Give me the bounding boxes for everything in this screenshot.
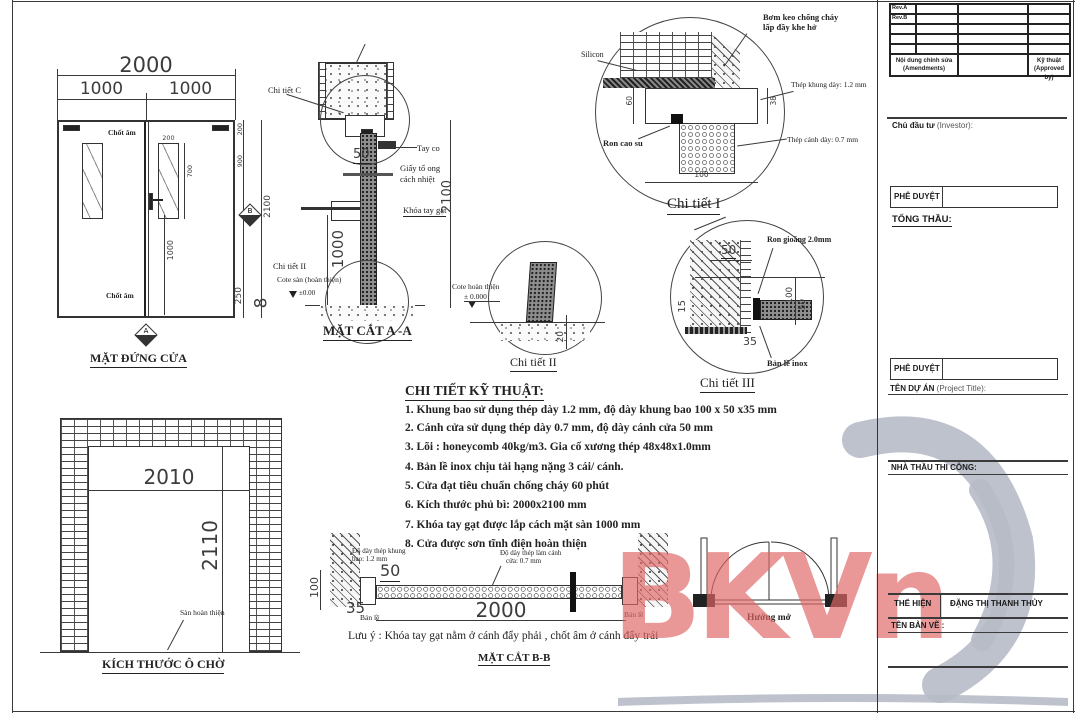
cell — [1028, 14, 1070, 24]
dim-opening-height: 2110 — [198, 520, 222, 571]
label-core-1: Giấy tổ ong — [400, 163, 440, 173]
dim-top-200: 200 — [236, 123, 244, 135]
floor-fill — [500, 323, 590, 341]
cell — [1028, 44, 1070, 54]
label-hinge-inox: Bản lề inox — [767, 358, 808, 368]
dim-100: 100 — [645, 170, 758, 179]
label-core-2: cách nhiệt — [400, 174, 435, 184]
dim-20: 20 — [556, 331, 566, 342]
spec-item: 2. Cánh cửa sử dụng thép dày 0.7 mm, độ … — [405, 422, 713, 434]
row-divider — [940, 593, 941, 617]
dim-line — [695, 277, 825, 278]
level-marker-icon — [289, 291, 297, 298]
dim-line — [88, 490, 250, 491]
label-tay-co: Tay co — [417, 143, 440, 153]
label-gasket: Ron gioăng 2.0mm — [767, 235, 831, 244]
dim-total-width: 2000 — [57, 53, 235, 77]
amendments-cell: Nội dung chỉnh sửa (Amendments) — [890, 54, 958, 76]
ext-line — [146, 93, 147, 120]
the-hien-label: THỂ HIỆN — [894, 599, 931, 608]
tong-thau-label: TỔNG THẦU: — [892, 214, 952, 227]
door-handle-icon — [149, 193, 153, 210]
cell — [958, 14, 1028, 24]
meeting-stile-line — [148, 122, 149, 316]
project-label-bold: TÊN DỰ ÁN — [890, 384, 934, 393]
rule — [888, 666, 1068, 668]
leader-line — [492, 566, 502, 587]
rule — [888, 394, 1068, 395]
dim-line — [795, 277, 796, 325]
section-marker-a-icon: A — [134, 323, 158, 347]
dim-bottom-250: 250 — [234, 287, 244, 304]
frame-profile — [645, 88, 758, 124]
meeting-stile — [144, 122, 146, 316]
rule — [888, 593, 1068, 595]
door-closer-body-icon — [378, 141, 396, 149]
approval-box-divider — [942, 358, 943, 380]
door-closer-left-icon — [63, 125, 80, 131]
spec-item: 1. Khung bao sử dụng thép dày 1.2 mm, độ… — [405, 404, 777, 416]
label-grout-2: lấp đầy khe hở — [763, 22, 817, 32]
sheet-border-left — [12, 0, 13, 713]
elevation-title: MẶT ĐỨNG CỬA — [90, 351, 187, 368]
label-floor: Sàn hoàn thiện — [180, 608, 225, 617]
floor-line — [40, 652, 300, 653]
dim-60: 60 — [625, 96, 634, 106]
vision-panel-left — [82, 143, 103, 219]
cell — [916, 44, 958, 54]
door-handle-lever — [153, 199, 163, 201]
detail-1-view: Silicon Bơm keo chống cháy lấp đầy khe h… — [575, 10, 875, 215]
project-title-label: TÊN DỰ ÁN (Project Title): — [890, 384, 986, 393]
cell — [890, 44, 916, 54]
dim-line — [184, 143, 185, 219]
label-leaf-steel: Thép cánh dày: 0.7 mm — [787, 135, 858, 144]
floor-strip — [685, 327, 747, 334]
cell — [916, 4, 958, 14]
dim-50: 50 — [353, 147, 370, 164]
dim-line — [645, 182, 758, 183]
sealant-strip — [603, 78, 715, 88]
cell — [890, 24, 916, 34]
section-aa-title: MẶT CẮT A -A — [323, 323, 412, 341]
spec-item: 5. Cửa đạt tiêu chuẩn chống cháy 60 phút — [405, 480, 609, 492]
detail-3-view: 50 15 35 100 50 Ron gioăng 2.0mm Bản lề … — [655, 215, 875, 395]
hinge-plate — [343, 173, 393, 176]
vision-panel-right — [158, 143, 179, 219]
cell — [958, 4, 1028, 14]
section-marker-b-icon: B — [238, 203, 262, 227]
label-cote-1: Cote hoàn thiện — [452, 282, 500, 291]
contractor-label: NHÀ THẦU THI CÔNG: — [891, 463, 977, 472]
leaf-core-strip — [376, 585, 622, 599]
dim-glass-height: 700 — [186, 165, 194, 177]
dim-38: 38 — [769, 96, 778, 106]
phe-duyet-2: PHÊ DUYỆT — [894, 364, 940, 373]
ten-ban-ve-label: TÊN BẢN VẼ : — [891, 621, 944, 630]
rule — [888, 617, 1068, 619]
dim-line — [320, 570, 321, 610]
ext-line — [235, 69, 236, 120]
dim-line — [710, 260, 752, 261]
svg-text:B: B — [248, 207, 253, 215]
rule — [887, 117, 1067, 119]
dim-50-right: 50 — [798, 299, 808, 310]
label-frame-steel: Thép khung dày: 1.2 mm — [791, 80, 867, 89]
dim-line — [566, 315, 567, 349]
label-hinge-left: Bản lề — [360, 613, 379, 622]
dim-15: 15 — [677, 300, 688, 313]
approved-cell: Kỹ thuật (Approved by) — [1028, 54, 1070, 76]
spec-item: 4. Bản lề inox chịu tải hạng nặng 3 cái/… — [405, 461, 624, 473]
title-block: Rev.A Rev.B Nội dung chỉnh sửa (Amendmen… — [877, 0, 1075, 713]
label-lock: Khóa tay gạt — [403, 205, 446, 217]
dim-right-leaf: 1000 — [146, 79, 235, 99]
brick-wall — [620, 32, 712, 78]
rev-b-cell: Rev.B — [890, 14, 916, 24]
dim-1000: 1000 — [329, 230, 347, 268]
dim-35: 35 — [743, 335, 757, 348]
cell — [1028, 34, 1070, 44]
opening-title: KÍCH THƯỚC Ô CHỜ — [102, 657, 224, 674]
dim-line — [222, 446, 223, 652]
cell — [916, 34, 958, 44]
leaf-section — [526, 262, 557, 322]
perforated-leaf — [679, 124, 735, 174]
detail-3-title: Chi tiết III — [700, 375, 755, 393]
dim-line — [57, 75, 235, 76]
investor-label: Chủ đầu tư (Investor): — [892, 121, 973, 130]
drawing-sheet: 2000 1000 1000 Chốt âm Chốt âm 200 700 1… — [0, 0, 1075, 713]
approval-box-divider — [942, 186, 943, 208]
label-level: ±0.00 — [299, 289, 315, 297]
level-line — [464, 301, 500, 302]
label-cote-2: ± 0.000 — [464, 292, 487, 301]
cell — [958, 44, 1028, 54]
cell — [958, 24, 1028, 34]
svg-text:A: A — [144, 327, 149, 335]
label-gasket: Ron cao su — [603, 138, 643, 148]
level-marker-icon — [468, 301, 476, 308]
dim-glass-width: 200 — [158, 134, 179, 142]
dim-50-top: 50 — [721, 243, 736, 259]
gasket-block — [671, 114, 683, 124]
label-grout-1: Bơm keo chống cháy — [763, 12, 838, 22]
dim-handle-height: 1000 — [166, 240, 175, 260]
investor-label-bold: Chủ đầu tư — [892, 121, 935, 130]
rev-a-cell: Rev.A — [890, 4, 916, 14]
label-top-flush-bolt: Chốt âm — [108, 128, 136, 137]
specs-title: CHI TIẾT KỸ THUẬT: — [405, 383, 544, 401]
dim-line — [767, 88, 768, 124]
wall-left — [330, 533, 360, 607]
rule — [888, 632, 1068, 633]
rule — [888, 474, 1068, 475]
cell — [1028, 4, 1070, 14]
cell — [1028, 24, 1070, 34]
gasket-block — [753, 298, 760, 320]
drafter-name: ĐẶNG THỊ THANH THỦY — [950, 599, 1043, 608]
label-detail-2: Chi tiết II — [273, 261, 306, 271]
dim-100: 100 — [785, 287, 795, 303]
spec-item: 6. Kích thước phủ bì: 2000x2100 mm — [405, 499, 587, 511]
opening-view: 2010 2110 Sàn hoàn thiện KÍCH THƯỚC Ô CH… — [40, 405, 340, 675]
door-closer-right-icon — [212, 125, 229, 131]
detail-1-title: Chi tiết I — [667, 196, 720, 215]
spec-item: 3. Lõi : honeycomb 40kg/m3. Gia cố xương… — [405, 441, 711, 453]
investor-label-normal: (Investor): — [937, 121, 973, 130]
cell — [890, 34, 916, 44]
section-bb-title: MẶT CẮT B-B — [478, 652, 550, 666]
cell — [958, 54, 1028, 76]
cell — [916, 24, 958, 34]
detail-2-view: Cote hoàn thiện ± 0.000 20 Chi tiết II — [440, 235, 640, 380]
project-label-normal: (Project Title): — [937, 384, 986, 393]
phe-duyet-1: PHÊ DUYỆT — [894, 192, 940, 201]
lock-body — [331, 201, 361, 221]
cell — [916, 14, 958, 24]
dim-opening-width: 2010 — [88, 465, 250, 489]
label-silicon: Silicon — [581, 50, 604, 59]
label-detail-c: Chi tiết C — [268, 85, 301, 95]
label-frame-1: Độ dày thép khung — [352, 547, 405, 555]
label-bottom-flush-bolt: Chốt âm — [106, 291, 134, 300]
dim-upper-900: 900 — [236, 155, 244, 167]
wall-edge — [740, 240, 751, 333]
label-leaf-1: Độ dày thép làm cánh — [500, 549, 561, 557]
ext-line — [57, 69, 58, 120]
cell — [958, 34, 1028, 44]
rule — [888, 460, 1068, 462]
dim-2000: 2000 — [376, 598, 626, 622]
revision-table: Rev.A Rev.B Nội dung chỉnh sửa (Amendmen… — [889, 3, 1071, 77]
detail-2-title: Chi tiết II — [510, 355, 557, 372]
lock-lever — [301, 207, 361, 210]
leader-line — [395, 147, 417, 148]
dim-50: 50 — [380, 561, 400, 582]
label-leaf-2: cửa: 0.7 mm — [506, 557, 541, 565]
dim-line — [633, 88, 634, 124]
dim-line — [164, 215, 165, 315]
dim-left-leaf: 1000 — [57, 79, 146, 99]
